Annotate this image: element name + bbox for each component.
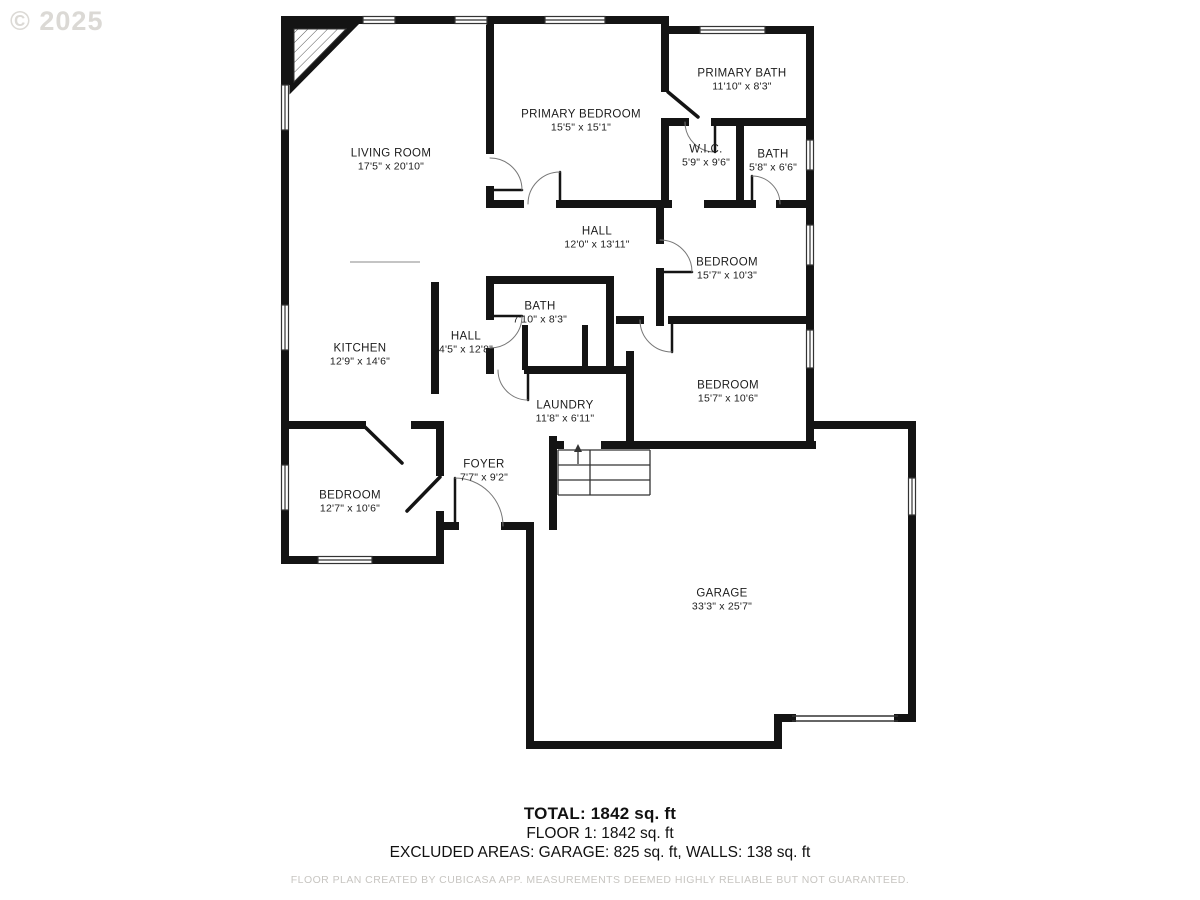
room-dims: 11'8" x 6'11" xyxy=(536,413,595,426)
windows xyxy=(281,16,917,565)
room-label-bath-center: BATH 7'10" x 8'3" xyxy=(513,299,567,327)
room-name: KITCHEN xyxy=(330,341,390,355)
room-dims: 7'10" x 8'3" xyxy=(513,314,567,327)
room-name: HALL xyxy=(439,329,493,343)
room-label-wic: W.I.C. 5'9" x 9'6" xyxy=(682,142,730,170)
floor-plan-page: © 2025 xyxy=(0,0,1200,900)
room-dims: 5'9" x 9'6" xyxy=(682,157,730,170)
room-dims: 15'7" x 10'6" xyxy=(697,393,759,406)
room-dims: 12'7" x 10'6" xyxy=(319,503,381,516)
room-label-bedroom-2: BEDROOM 15'7" x 10'6" xyxy=(697,378,759,406)
room-name: BATH xyxy=(749,147,797,161)
floor-plan-drawing xyxy=(0,0,1200,900)
room-label-bath-small: BATH 5'8" x 6'6" xyxy=(749,147,797,175)
room-dims: 5'8" x 6'6" xyxy=(749,162,797,175)
fireplace-icon xyxy=(289,23,360,95)
room-label-kitchen: KITCHEN 12'9" x 14'6" xyxy=(330,341,390,369)
room-label-garage: GARAGE 33'3" x 25'7" xyxy=(692,586,752,614)
room-label-living-room: LIVING ROOM 17'5" x 20'10" xyxy=(351,146,432,174)
room-dims: 15'5" x 15'1" xyxy=(521,122,641,135)
room-dims: 12'0" x 13'11" xyxy=(564,239,629,252)
garage-door xyxy=(792,716,898,721)
room-label-hall-2: HALL 4'5" x 12'8" xyxy=(439,329,493,357)
room-label-laundry: LAUNDRY 11'8" x 6'11" xyxy=(536,398,595,426)
room-name: LIVING ROOM xyxy=(351,146,432,160)
room-label-primary-bedroom: PRIMARY BEDROOM 15'5" x 15'1" xyxy=(521,107,641,135)
room-name: BEDROOM xyxy=(697,378,759,392)
room-dims: 33'3" x 25'7" xyxy=(692,601,752,614)
room-name: GARAGE xyxy=(692,586,752,600)
room-name: W.I.C. xyxy=(682,142,730,156)
area-summary: TOTAL: 1842 sq. ft FLOOR 1: 1842 sq. ft … xyxy=(0,804,1200,886)
stairs xyxy=(558,444,650,495)
room-name: PRIMARY BEDROOM xyxy=(521,107,641,121)
room-label-bedroom-1: BEDROOM 15'7" x 10'3" xyxy=(696,255,758,283)
room-label-bedroom-3: BEDROOM 12'7" x 10'6" xyxy=(319,488,381,516)
room-name: BATH xyxy=(513,299,567,313)
room-label-foyer: FOYER 7'7" x 9'2" xyxy=(460,457,508,485)
room-dims: 4'5" x 12'8" xyxy=(439,344,493,357)
room-label-hall-main: HALL 12'0" x 13'11" xyxy=(564,224,629,252)
room-name: HALL xyxy=(564,224,629,238)
room-name: PRIMARY BATH xyxy=(697,66,786,80)
room-label-primary-bath: PRIMARY BATH 11'10" x 8'3" xyxy=(697,66,786,94)
total-area-text: TOTAL: 1842 sq. ft xyxy=(0,804,1200,824)
room-dims: 7'7" x 9'2" xyxy=(460,472,508,485)
room-dims: 17'5" x 20'10" xyxy=(351,161,432,174)
room-name: FOYER xyxy=(460,457,508,471)
room-dims: 12'9" x 14'6" xyxy=(330,356,390,369)
room-name: BEDROOM xyxy=(319,488,381,502)
room-dims: 15'7" x 10'3" xyxy=(696,270,758,283)
excluded-areas-text: EXCLUDED AREAS: GARAGE: 825 sq. ft, WALL… xyxy=(0,844,1200,862)
room-name: BEDROOM xyxy=(696,255,758,269)
room-dims: 11'10" x 8'3" xyxy=(697,81,786,94)
room-name: LAUNDRY xyxy=(536,398,595,412)
floor1-area-text: FLOOR 1: 1842 sq. ft xyxy=(0,825,1200,843)
disclaimer-text: FLOOR PLAN CREATED BY CUBICASA APP. MEAS… xyxy=(0,874,1200,886)
